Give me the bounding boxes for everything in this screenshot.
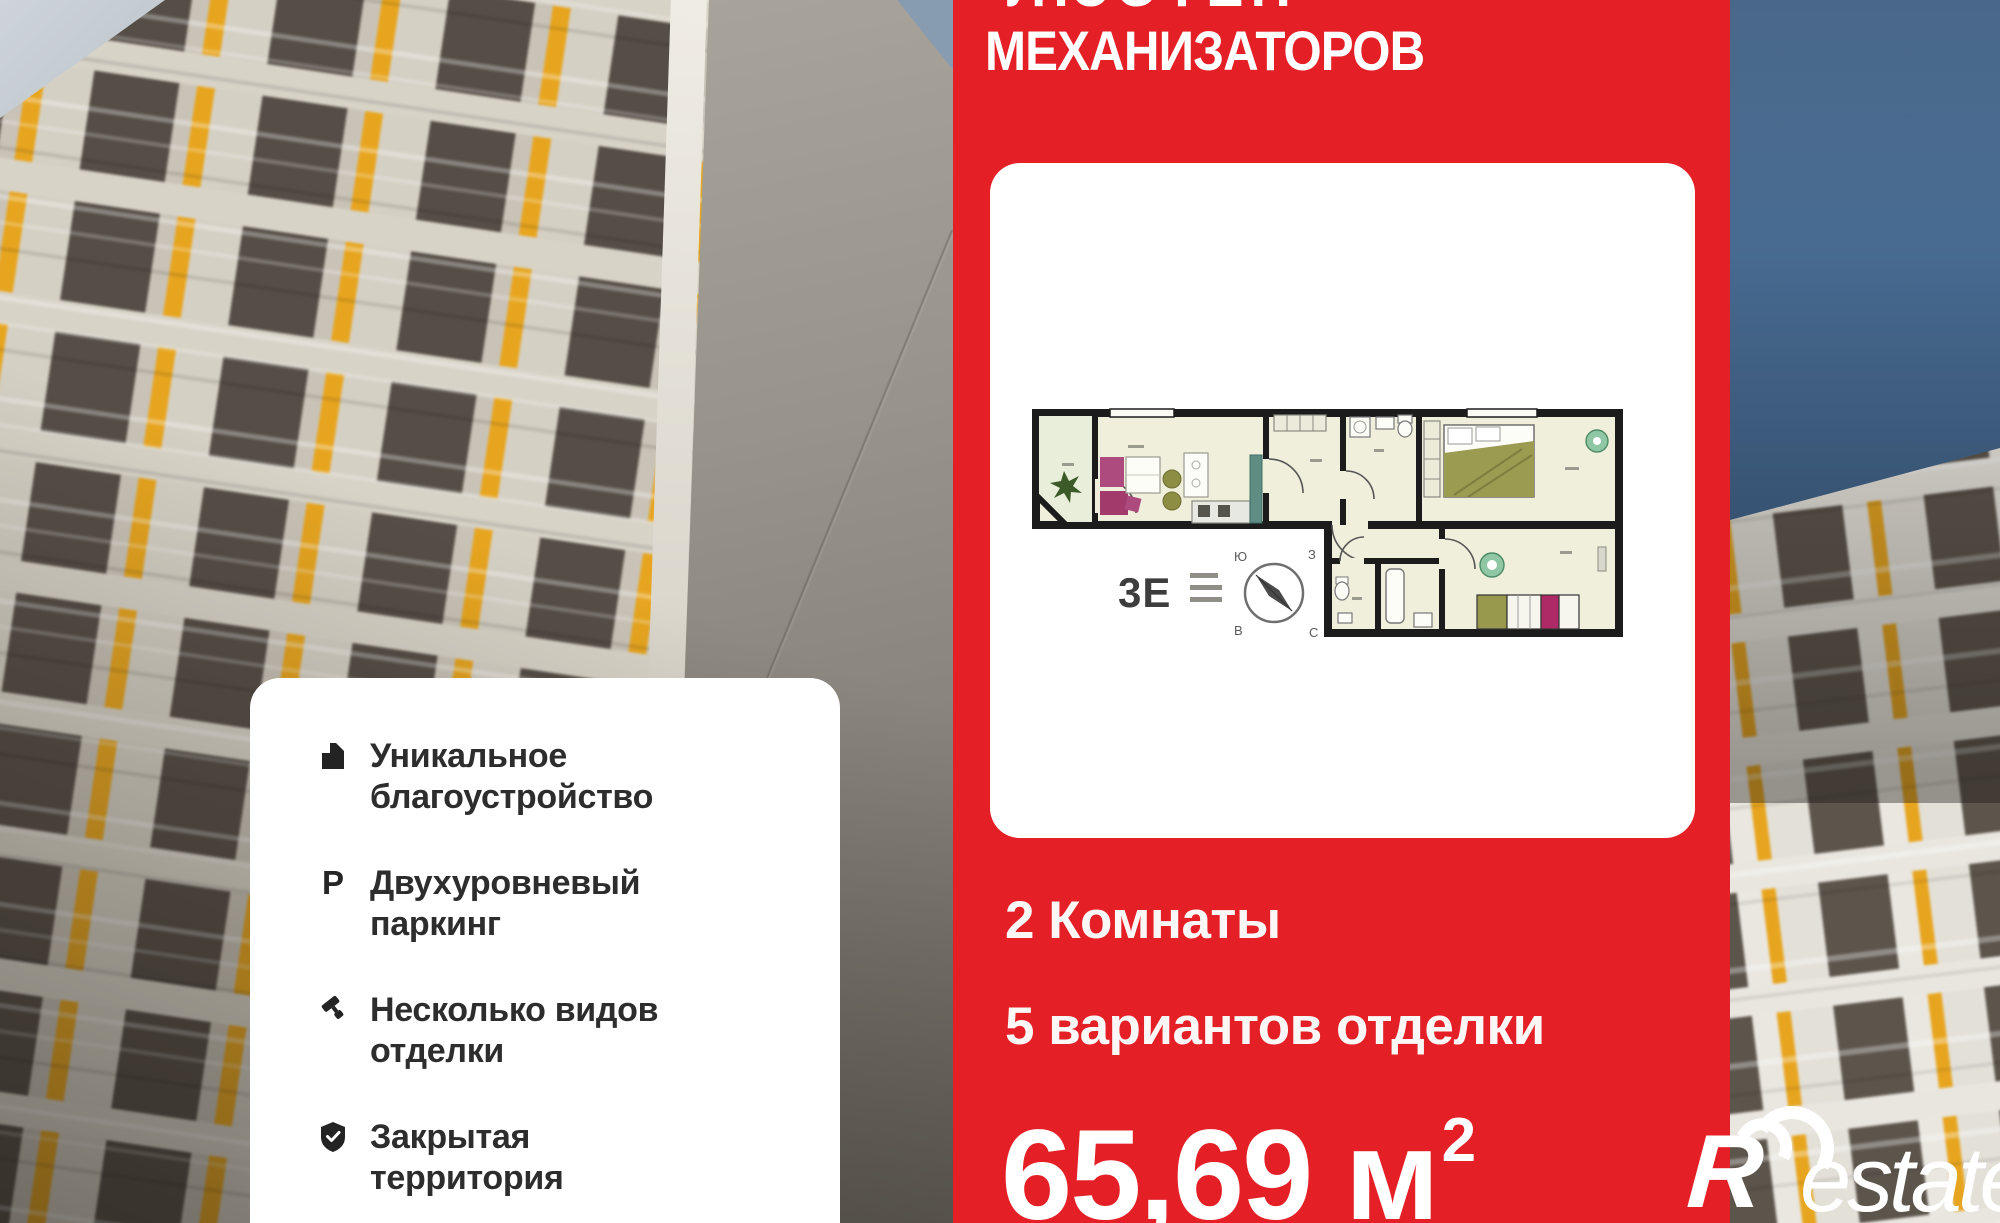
right-photo-shadow (1730, 0, 2000, 803)
compass-south-label: Ю (1234, 549, 1247, 564)
landscaping-icon (316, 736, 350, 779)
restate-logo: R estate (1682, 1112, 2000, 1223)
feature-row-territory: Закрытая территория (316, 1117, 840, 1200)
logo-wordmark: estate (1800, 1134, 2000, 1223)
finish-options: 5 вариантов отделки (1005, 996, 1545, 1057)
feature-row-parking: Р Двухуровневый паркинг (316, 863, 840, 946)
feature-label: Несколько видов отделки (370, 990, 675, 1073)
apartment-type-label: 3Е (1118, 569, 1171, 616)
apartment-area: 65,69 м2 (1001, 1102, 1474, 1223)
illegible-type-figures (1190, 573, 1222, 602)
sofa (1100, 457, 1124, 487)
feature-label: Двухуровневый паркинг (370, 863, 675, 946)
feature-label: Уникальное благоустройство (370, 736, 675, 819)
bed (1444, 425, 1534, 497)
complex-title-line2: МЕХАНИЗАТОРОВ (985, 18, 1424, 83)
bathtub (1386, 569, 1404, 623)
complex-title-line1-cropped: ЛЮЭТЕН (1007, 0, 1567, 13)
compass-north-label: С (1309, 625, 1318, 640)
paint-roller-icon (316, 990, 350, 1033)
logo-r-mark: R (1684, 1120, 1766, 1223)
building-photo-right (1730, 0, 2000, 1223)
floor-plan-card: 3Е Ю З В С (990, 163, 1695, 838)
compass-west-label: З (1308, 547, 1316, 562)
feature-label: Закрытая территория (370, 1117, 675, 1200)
compass-east-label: В (1234, 623, 1243, 638)
listing-banner: Уникальное благоустройство Р Двухуровнев… (0, 0, 2000, 1223)
floor-plan-drawing: 3Е Ю З В С (1022, 401, 1662, 651)
shield-check-icon (316, 1117, 350, 1160)
features-card: Уникальное благоустройство Р Двухуровнев… (250, 678, 840, 1223)
red-info-panel: ЛЮЭТЕН МЕХАНИЗАТОРОВ (953, 0, 1730, 1223)
compass: Ю З В С (1234, 547, 1318, 640)
parking-icon: Р (316, 863, 350, 906)
feature-row-landscaping: Уникальное благоустройство (316, 736, 840, 819)
striped-wardrobe (1477, 595, 1579, 629)
feature-row-finishes: Несколько видов отделки (316, 990, 840, 1073)
rooms-count: 2 Комнаты (1005, 890, 1281, 951)
